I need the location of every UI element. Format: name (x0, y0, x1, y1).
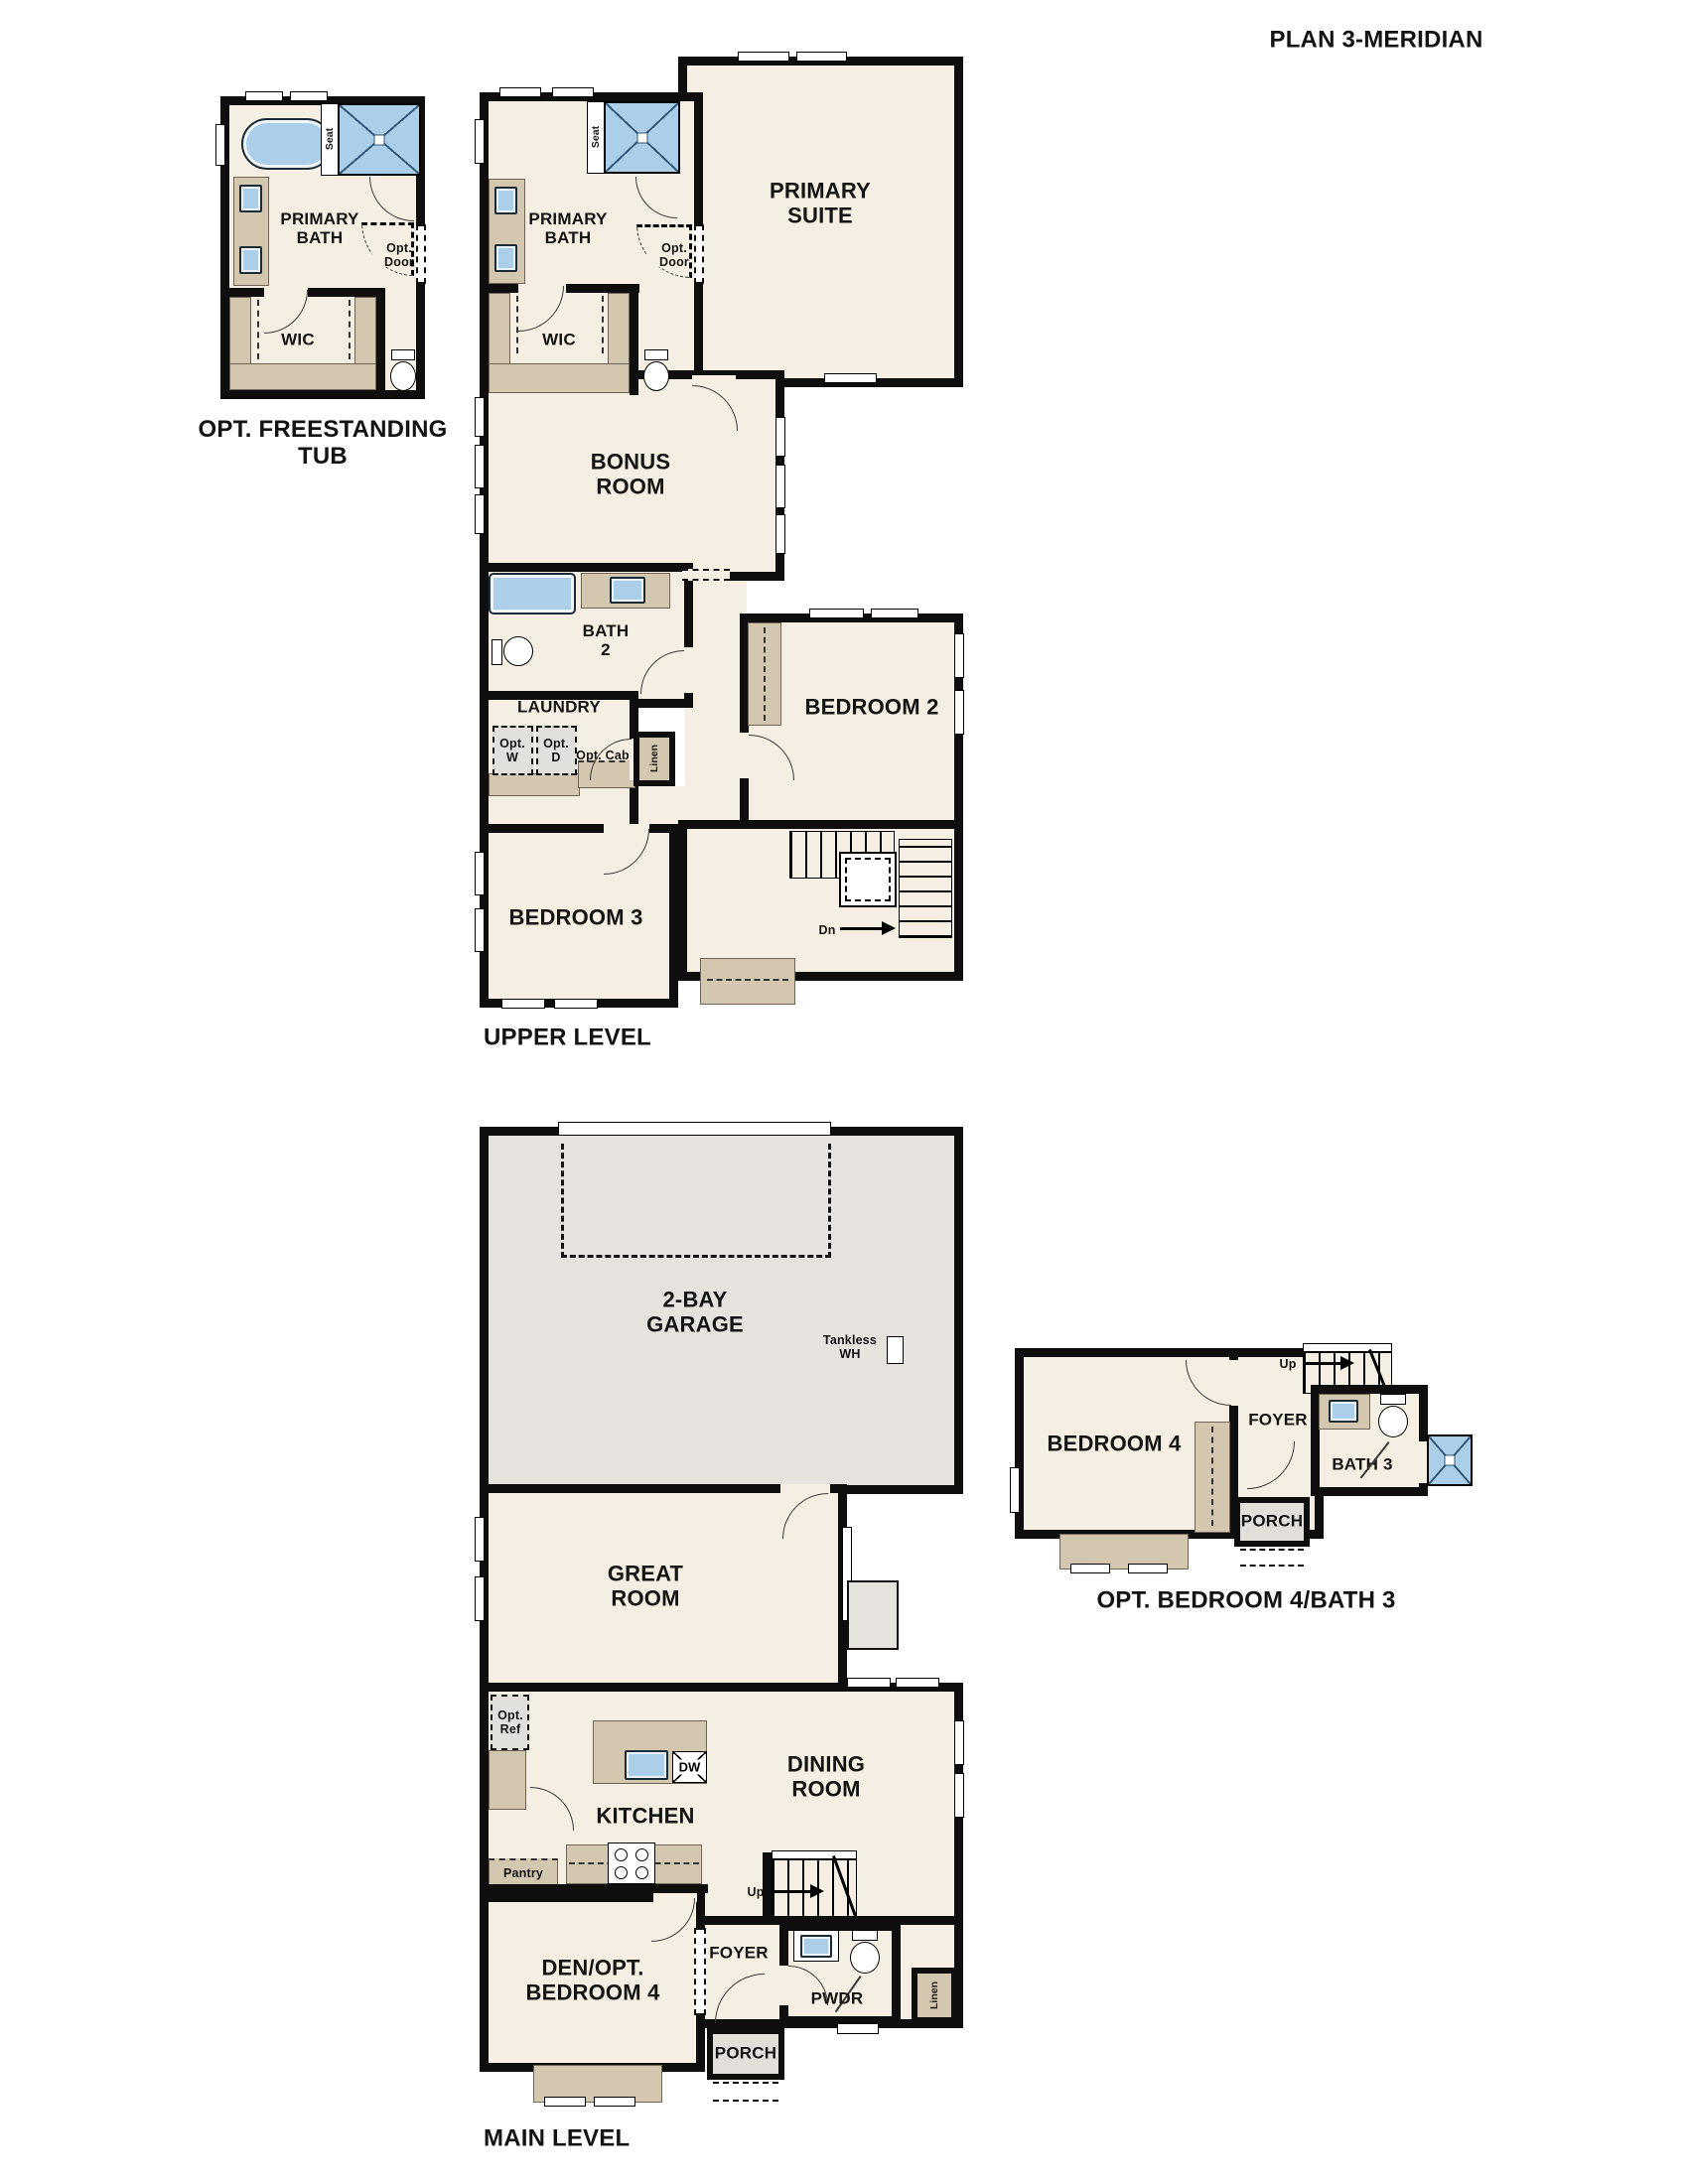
room-label-kitchen: KITCHEN (596, 1805, 694, 1830)
opt-door-label: Opt. Door (384, 241, 414, 269)
stair-landing (839, 852, 897, 907)
window-icon (475, 445, 485, 488)
roof-dashed-line (707, 979, 788, 981)
caption-opt-bed4: OPT. BEDROOM 4/BATH 3 (1096, 1588, 1395, 1615)
sink-icon (239, 185, 262, 212)
shower-icon (338, 103, 421, 176)
window-icon (796, 52, 847, 62)
opt-door-label: Opt. Door (659, 241, 689, 269)
burner-icon (635, 1848, 648, 1861)
page-title: PLAN 3-MERIDIAN (1269, 28, 1482, 55)
toilet-icon (644, 349, 668, 360)
shower-icon (1427, 1434, 1473, 1486)
room-label-great-room: GREAT ROOM (608, 1562, 683, 1610)
toilet-icon (503, 636, 533, 666)
dw-label: DW (677, 1760, 703, 1775)
closet-shelf (229, 363, 376, 390)
interior-wall (376, 288, 385, 395)
shower-drain-icon (1445, 1455, 1456, 1466)
room-label-bedroom2: BEDROOM 2 (804, 696, 938, 721)
room-label-dining: DINING ROOM (787, 1752, 865, 1801)
window-icon (475, 1517, 485, 1562)
sink-icon (610, 577, 645, 604)
tankless-wh-label: Tankless WH (823, 1333, 877, 1361)
opt-ref-label: Opt. Ref (497, 1708, 523, 1736)
window-icon (1070, 1564, 1110, 1573)
stairs-up-arrowhead (810, 1884, 824, 1898)
toilet-icon (1378, 1406, 1408, 1437)
window-icon (475, 852, 485, 895)
window-icon (1010, 1467, 1020, 1513)
closet-rod-dashed (1211, 1427, 1213, 1526)
window-icon (871, 609, 918, 618)
caption-upper-level: UPPER LEVEL (484, 1025, 651, 1052)
stairs-up-arrowhead (1340, 1356, 1354, 1370)
burner-icon (615, 1866, 628, 1879)
bathtub-icon (489, 573, 576, 614)
window-icon (809, 609, 864, 618)
opt-dryer-label: Opt. D (543, 737, 569, 764)
window-icon (215, 124, 225, 166)
window-icon (499, 87, 541, 97)
window-icon (290, 91, 328, 101)
porch-roof-below (700, 958, 795, 1005)
closet-rod-dashed (516, 296, 518, 353)
sink-icon (494, 187, 517, 214)
caption-opt-tub: OPT. FREESTANDING TUB (199, 417, 448, 471)
linen-label: Linen (928, 1981, 940, 2009)
room-label-foyer: FOYER (1248, 1410, 1308, 1429)
stair-rail (1303, 1343, 1392, 1352)
caption-main-level: MAIN LEVEL (484, 2126, 630, 2153)
room-label-bedroom3: BEDROOM 3 (508, 906, 642, 931)
room-label-foyer: FOYER (709, 1943, 769, 1962)
toilet-icon (850, 1942, 880, 1974)
toilet-icon (1380, 1394, 1406, 1405)
window-icon (594, 2097, 635, 2107)
closet-shelf (489, 363, 630, 393)
window-icon (847, 1678, 891, 1688)
window-icon (954, 1773, 964, 1818)
sink-icon (239, 246, 262, 274)
window-icon (475, 397, 485, 437)
room-label-bedroom4: BEDROOM 4 (1047, 1433, 1181, 1457)
toilet-icon (391, 349, 415, 360)
window-icon (501, 999, 545, 1009)
optional-door-wall (694, 224, 704, 284)
stairs-up-arrow (771, 1890, 812, 1893)
toilet-icon (643, 361, 669, 391)
kitchen-counter (489, 1750, 526, 1810)
floorplan-canvas: PLAN 3-MERIDIAN Seat PRIMARY BATH Opt. D… (0, 0, 1688, 2184)
closet-rod-dashed (349, 300, 351, 359)
stairs-down-arrowhead (882, 921, 896, 935)
room-label-den: DEN/OPT. BEDROOM 4 (525, 1956, 659, 2004)
tankless-wh-icon (887, 1336, 904, 1364)
room-label-garage: 2-BAY GARAGE (646, 1288, 744, 1336)
seat-label: Seat (324, 128, 336, 150)
room-label-wic: WIC (542, 330, 576, 348)
stairs-up-arrow (1303, 1362, 1342, 1365)
window-icon (896, 1678, 939, 1688)
room-label-bath2: BATH 2 (583, 621, 630, 659)
window-icon (738, 52, 789, 62)
pantry-label: Pantry (503, 1866, 543, 1880)
room-label-porch: PORCH (1241, 1511, 1303, 1530)
toilet-icon (390, 361, 416, 391)
window-icon (475, 908, 485, 952)
closet-rod-dashed (257, 300, 259, 359)
linen-label: Linen (648, 745, 660, 772)
freestanding-tub-icon (241, 118, 333, 170)
closet-rod-dashed (764, 627, 766, 721)
shower-icon (604, 101, 680, 174)
door-opening (684, 647, 693, 693)
garage-door-track-dashed (561, 1144, 831, 1258)
seat-label: Seat (590, 126, 602, 148)
stairs-down-arrow (840, 927, 884, 930)
shower-drain-icon (636, 132, 647, 143)
window-icon (954, 633, 964, 678)
room-label-primary-bath: PRIMARY BATH (528, 209, 607, 247)
laundry-counter (489, 773, 580, 796)
room-label-bath3: BATH 3 (1332, 1454, 1392, 1473)
room-label-wic: WIC (281, 330, 315, 348)
interior-wall (630, 284, 638, 395)
door-opening (779, 1966, 788, 2005)
stairs-up-label: Up (747, 1885, 764, 1899)
optional-door-wall (416, 224, 426, 284)
room-label-primary-suite: PRIMARY SUITE (770, 179, 871, 227)
range-icon (608, 1843, 655, 1884)
entry-stoop (837, 2023, 879, 2034)
room-label-pwdr: PWDR (811, 1988, 864, 2007)
window-icon (554, 999, 598, 1009)
window-icon (1128, 1564, 1168, 1573)
sink-icon (1329, 1400, 1358, 1423)
room-label-porch: PORCH (715, 2043, 776, 2062)
window-icon (245, 91, 283, 101)
window-icon (775, 514, 785, 554)
window-icon (544, 2097, 586, 2107)
toilet-icon (492, 639, 502, 665)
window-icon (552, 87, 594, 97)
window-icon (824, 373, 877, 383)
optional-wall-dashed (694, 1928, 706, 2015)
shower-drain-icon (374, 134, 385, 145)
window-icon (954, 1720, 964, 1765)
room-label-primary-bath: PRIMARY BATH (280, 209, 358, 247)
window-icon (475, 1576, 485, 1621)
sink-icon (625, 1750, 668, 1780)
stair-rail (772, 1850, 857, 1859)
sink-icon (494, 244, 517, 272)
burner-icon (635, 1866, 648, 1879)
window-icon (475, 494, 485, 534)
window-icon (775, 417, 785, 457)
room-label-bonus: BONUS ROOM (591, 450, 670, 498)
porch-steps (713, 2082, 778, 2102)
interior-wall (480, 1884, 708, 1893)
window-icon (475, 119, 485, 164)
dishwasher-icon: DW (672, 1751, 707, 1783)
window-icon (775, 465, 785, 508)
burner-icon (615, 1848, 628, 1861)
door-opening (780, 1484, 830, 1493)
stair-treads (899, 839, 952, 938)
closet-rod-dashed (602, 296, 604, 353)
stairs-up-label: Up (1279, 1357, 1296, 1371)
toilet-icon (852, 1930, 878, 1941)
door-opening (740, 733, 749, 778)
sink-icon (800, 1935, 832, 1958)
room-label-laundry: LAUNDRY (517, 697, 601, 716)
garage-door (558, 1122, 831, 1136)
stairs-down-label: Dn (818, 923, 835, 937)
fireplace-niche (847, 1580, 899, 1650)
opt-washer-label: Opt. W (499, 737, 525, 764)
porch-steps (1240, 1549, 1304, 1567)
cased-opening (682, 569, 730, 581)
window-icon (954, 690, 964, 735)
